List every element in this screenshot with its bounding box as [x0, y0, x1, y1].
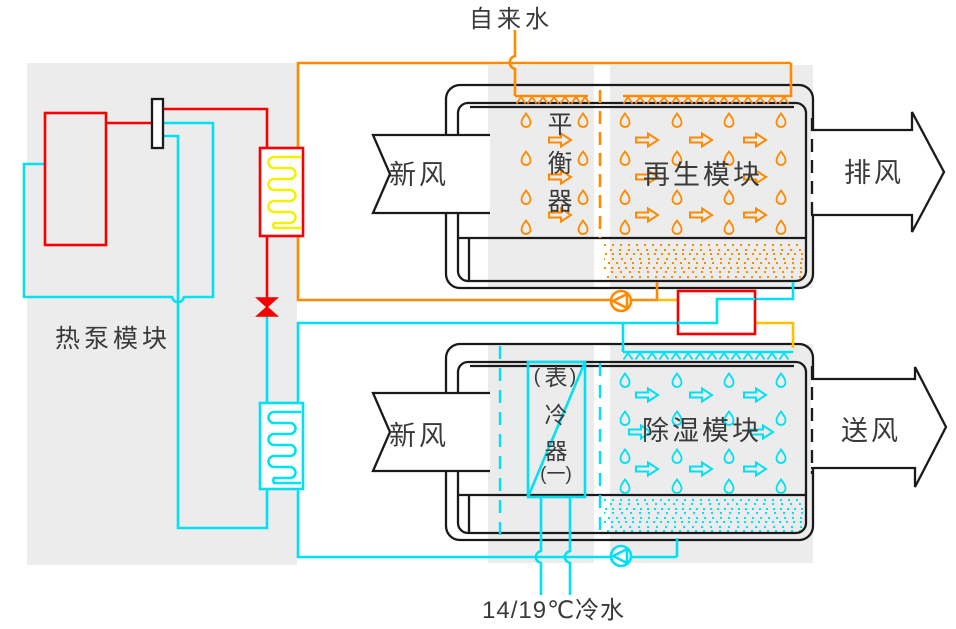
evaporator-coil — [260, 403, 303, 489]
svg-text:平: 平 — [547, 111, 572, 139]
svg-text:器: 器 — [547, 188, 572, 216]
svg-text:器: 器 — [545, 438, 568, 464]
svg-text:(: ( — [534, 366, 541, 388]
dehumidification-pump-icon — [611, 546, 631, 566]
supply-air-label: 送风 — [841, 416, 901, 446]
dehumidification-module-label: 除湿模块 — [642, 416, 762, 446]
svg-text:表: 表 — [545, 364, 568, 390]
exhaust-air-label: 排风 — [844, 158, 904, 188]
svg-text:衡: 衡 — [547, 150, 572, 178]
chilled-water-label: 14/19℃冷水 — [482, 597, 625, 624]
regeneration-pump-icon — [611, 291, 631, 311]
svg-text:): ) — [570, 366, 577, 388]
regeneration-module-label: 再生模块 — [643, 160, 763, 190]
tap-water-label: 自来水 — [469, 6, 553, 33]
fresh-air-label-top: 新风 — [389, 160, 449, 190]
fresh-air-label-bottom: 新风 — [389, 421, 449, 451]
svg-text:冷: 冷 — [545, 402, 568, 428]
compressor-icon — [152, 99, 163, 148]
svg-text:(一): (一) — [540, 464, 572, 485]
balancer-label: 平 衡 器 — [547, 111, 572, 216]
condenser-coil — [260, 148, 303, 236]
heat-pump-module-label: 热泵模块 — [55, 325, 171, 353]
liquid-desiccant-system-diagram: 自来水 新风 排风 新风 送风 再生模块 除湿模块 热泵模块 平 衡 器 ( 表… — [0, 0, 956, 629]
